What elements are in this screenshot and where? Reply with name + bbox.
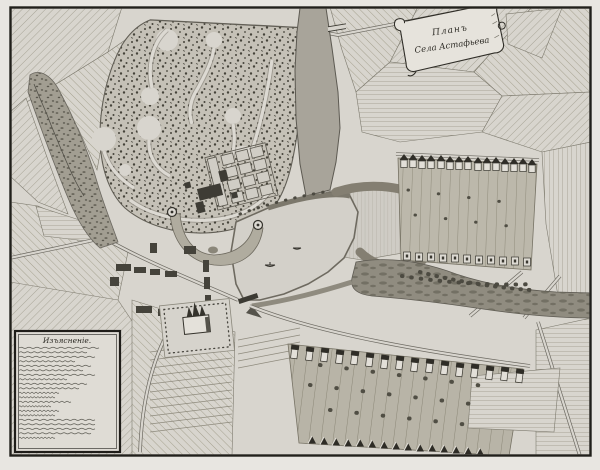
church-plot [159, 299, 234, 358]
pond-island [208, 247, 218, 254]
scanned-map-page: Изъясненіе. [0, 0, 600, 470]
estate-plan-engraving: Изъясненіе. [0, 0, 600, 470]
legend-panel: Изъясненіе. [15, 331, 120, 452]
legend-title: Изъясненіе. [42, 336, 91, 345]
